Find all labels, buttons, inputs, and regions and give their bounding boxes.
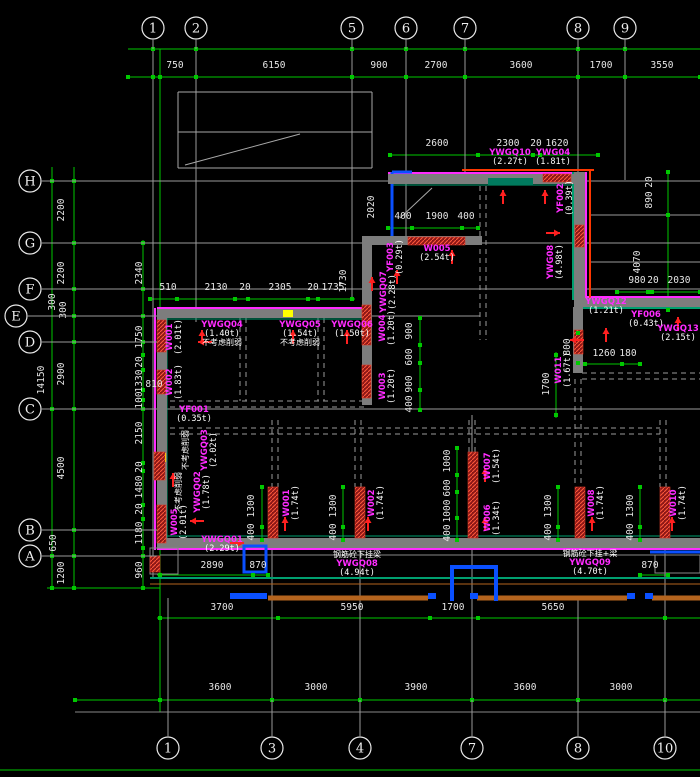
dim-text: 3000 <box>305 682 328 693</box>
dim-tick <box>260 485 264 489</box>
grid-bubble-label-10: 10 <box>657 742 674 757</box>
wall-label-ywgq09-value: (4.70t) <box>572 567 608 577</box>
wall-label-yf002-value: (0.39t) <box>565 180 575 216</box>
leader-arrow-head <box>542 190 549 196</box>
dim-tick <box>455 490 459 494</box>
dim-text: 1750 <box>134 325 145 348</box>
dim-tick <box>410 226 414 230</box>
dim-text: 2890 <box>201 560 224 571</box>
dim-text: 4070 <box>632 250 643 273</box>
dim-text: 1730 <box>338 269 349 292</box>
wall-label-w001-value: (2.01t) <box>174 319 184 355</box>
dim-tick <box>556 525 560 529</box>
dim-text: 2020 <box>366 195 377 218</box>
grid-bubble-label-4: 4 <box>356 742 364 757</box>
dim-tick <box>251 573 255 577</box>
dim-text: 400 <box>328 523 339 540</box>
dim-text: 3600 <box>510 60 533 71</box>
wall-label-w008-value: (1.74t) <box>596 485 606 521</box>
leader-arrow-head <box>589 517 596 523</box>
dim-tick <box>194 75 198 79</box>
grid-bubble-label-E: E <box>11 310 21 325</box>
dim-text: 180 <box>619 348 636 359</box>
dim-text: 1260 <box>593 348 616 359</box>
cad-line <box>185 134 300 165</box>
dim-text: 870 <box>249 560 266 571</box>
dim-tick <box>596 153 600 157</box>
dim-tick <box>158 698 162 702</box>
wall-segment <box>428 593 436 599</box>
dim-text: 100 <box>134 391 145 408</box>
dim-tick <box>556 538 560 542</box>
dim-tick <box>126 75 130 79</box>
dim-text: 1000 <box>442 449 453 472</box>
dim-tick <box>73 698 77 702</box>
wall-label-yf003-value: (0.29t) <box>395 239 405 275</box>
dim-text: 20 <box>134 356 145 368</box>
dim-tick <box>620 362 624 366</box>
dim-tick <box>455 538 459 542</box>
dim-text: 3550 <box>651 60 674 71</box>
wall-label-ywgq09-note: 钢筋砼下挂+梁 <box>563 548 618 558</box>
dim-text: 2305 <box>269 282 292 293</box>
dim-text: 5650 <box>542 602 565 613</box>
dim-text: 1700 <box>590 60 613 71</box>
dim-tick <box>576 361 580 365</box>
grid-bubble-label-G: G <box>25 237 35 252</box>
dim-tick <box>418 408 422 412</box>
dim-text: 3600 <box>514 682 537 693</box>
dim-tick <box>72 586 76 590</box>
dim-text: 650 <box>48 534 59 551</box>
dim-text: 1330 <box>134 369 145 392</box>
dim-text: 4500 <box>56 456 67 479</box>
grid-bubble-label-C: C <box>25 403 35 418</box>
dim-text: 20 <box>239 282 251 293</box>
dim-tick <box>141 517 145 521</box>
dim-tick <box>316 297 320 301</box>
dim-tick <box>476 226 480 230</box>
dim-text: 3600 <box>209 682 232 693</box>
wall-label-ywgq01-value: (2.29t) <box>204 544 240 554</box>
hatched-pier <box>468 452 478 538</box>
leader-arrow-head <box>554 230 560 237</box>
dim-text: 510 <box>159 282 176 293</box>
leader-arrow-head <box>365 517 372 523</box>
wall-label-ywgq08-value: (4.94t) <box>339 568 375 578</box>
dim-tick <box>460 226 464 230</box>
dim-text: 2200 <box>56 261 67 284</box>
dim-tick <box>404 75 408 79</box>
dim-text: 14150 <box>36 365 47 394</box>
hatched-pier <box>154 452 165 480</box>
dim-tick <box>476 616 480 620</box>
wall-label-ywgq02-value: (1.78t) <box>202 474 212 510</box>
dim-tick <box>233 297 237 301</box>
dim-tick <box>418 388 422 392</box>
wall-label-ywg04-value: (1.81t) <box>535 157 571 167</box>
dim-tick <box>666 308 670 312</box>
hatched-pier <box>157 505 166 543</box>
hatched-pier <box>575 225 584 247</box>
dim-text: 2150 <box>134 421 145 444</box>
dim-tick <box>350 75 354 79</box>
wall-segment <box>470 593 478 599</box>
dim-tick <box>246 297 250 301</box>
dim-text: 20 <box>647 275 659 286</box>
dim-tick <box>141 586 145 590</box>
dim-text: 1700 <box>541 372 552 395</box>
dim-text: 2130 <box>205 282 228 293</box>
dim-text: 20 <box>307 282 319 293</box>
wall-label-ywgq08-note: 钢筋砼下挂梁 <box>333 549 381 559</box>
wall-label-ywgq04-note: 不考虑削弱 <box>202 337 242 347</box>
wall-label-w006-value: (1.34t) <box>492 500 502 536</box>
wall-segment <box>230 593 267 599</box>
dim-tick <box>638 538 642 542</box>
grid-bubble-label-H: H <box>24 175 35 190</box>
dim-tick <box>341 485 345 489</box>
dim-text: 300 <box>47 293 58 310</box>
wall-label-ywg08-value: (4.98t) <box>555 244 565 280</box>
dim-text: 400 <box>394 211 411 222</box>
dim-text: 1700 <box>442 602 465 613</box>
dim-text: 750 <box>166 60 183 71</box>
dim-text: 980 <box>628 275 645 286</box>
wall-label-ywgq07-value: (2.28t) <box>388 274 398 310</box>
grid-bubble-label-1: 1 <box>164 742 172 757</box>
dim-text: 400 <box>543 523 554 540</box>
dim-tick <box>556 485 560 489</box>
dim-tick <box>554 413 558 417</box>
hatched-pier <box>575 487 585 538</box>
dim-tick <box>463 75 467 79</box>
dim-tick <box>175 297 179 301</box>
dim-tick <box>646 290 650 294</box>
dim-tick <box>666 170 670 174</box>
dim-tick <box>158 75 162 79</box>
cad-drawing-canvas[interactable]: 7506150900270036001700355022002200300300… <box>0 0 700 777</box>
dim-tick <box>388 153 392 157</box>
dim-tick <box>455 446 459 450</box>
leader-arrow-head <box>190 518 196 525</box>
dim-tick <box>615 290 619 294</box>
wall-label-w010-value: (1.74t) <box>678 485 688 521</box>
wall-segment <box>645 593 653 599</box>
dim-tick <box>476 153 480 157</box>
wall-label-w004-value: (1.20t) <box>387 310 397 346</box>
dim-tick <box>386 226 390 230</box>
grid-bubble-label-7: 7 <box>468 742 476 757</box>
hatched-pier <box>362 365 371 398</box>
wall-label-ywgq05-note: 不考虑削弱 <box>280 337 320 347</box>
grid-bubble-label-F: F <box>25 283 34 298</box>
dim-text: 2200 <box>56 198 67 221</box>
dim-text: 3900 <box>405 682 428 693</box>
dim-tick <box>663 616 667 620</box>
dim-tick <box>666 213 670 217</box>
dim-text: 400 <box>246 523 257 540</box>
wall-label-w011-value: (1.67t) <box>563 352 573 388</box>
grid-bubble-label-2: 2 <box>192 22 200 37</box>
dim-tick <box>141 546 145 550</box>
dim-tick <box>158 616 162 620</box>
dim-text: 5950 <box>341 602 364 613</box>
wall-segment <box>655 555 700 573</box>
grid-bubble-label-A: A <box>24 550 35 565</box>
dim-text: 3700 <box>211 602 234 613</box>
grid-bubble-label-6: 6 <box>402 22 410 37</box>
wall-label-w001-value: (1.74t) <box>291 485 301 521</box>
dim-tick <box>576 75 580 79</box>
dim-tick <box>650 290 654 294</box>
wall-label-ywgq06-value: (1.50t) <box>334 329 370 339</box>
dim-tick <box>638 573 642 577</box>
dim-text: 20 <box>134 503 145 515</box>
dim-tick <box>350 297 354 301</box>
wall-label-yf001-value: (0.35t) <box>176 414 212 424</box>
dim-tick <box>341 538 345 542</box>
leader-arrow-head <box>675 317 682 323</box>
wall-label-ywgq03-value: (2.02t) <box>209 432 219 468</box>
grid-bubble-label-B: B <box>25 524 35 539</box>
wall-label-ywgq03-note: 不考虑削弱 <box>180 430 190 470</box>
cad-svg: 7506150900270036001700355022002200300300… <box>0 0 700 777</box>
leader-arrow-head <box>500 190 507 196</box>
dim-text: 900 <box>404 322 415 339</box>
dim-text: 1300 <box>543 494 554 517</box>
dim-text: 400 <box>457 211 474 222</box>
dim-tick <box>418 343 422 347</box>
dim-text: 600 <box>442 479 453 496</box>
wall-label-w005-value: (2.54t) <box>419 253 455 263</box>
grid-bubble-label-1: 1 <box>149 22 157 37</box>
dim-text: 6150 <box>263 60 286 71</box>
dim-text: 3000 <box>610 682 633 693</box>
wall-label-ywgq12-value: (1.21t) <box>588 306 624 316</box>
dim-tick <box>455 516 459 520</box>
hatched-pier <box>355 487 365 538</box>
wall-label-w005-value: (2.01t) <box>179 504 189 540</box>
dim-text: 1300 <box>625 494 636 517</box>
dim-text: 900 <box>370 60 387 71</box>
dim-text: 400 <box>442 524 453 541</box>
grid-bubble-label-9: 9 <box>621 22 629 37</box>
dim-tick <box>638 525 642 529</box>
wall-label-ywgq10-value: (2.27t) <box>492 157 528 167</box>
dim-text: 400 <box>404 395 415 412</box>
dim-text: 20 <box>644 176 655 188</box>
dim-text: 870 <box>641 560 658 571</box>
dim-tick <box>276 616 280 620</box>
dim-tick <box>260 538 264 542</box>
dim-text: 1200 <box>56 561 67 584</box>
dim-text: 960 <box>134 561 145 578</box>
dim-tick <box>266 573 270 577</box>
dim-tick <box>341 525 345 529</box>
dim-text: 400 <box>625 523 636 540</box>
wall-segment <box>283 310 293 317</box>
grid-bubble-label-8: 8 <box>574 22 582 37</box>
dim-tick <box>148 297 152 301</box>
dim-tick <box>428 616 432 620</box>
dim-text: 890 <box>644 191 655 208</box>
wall-segment <box>627 593 635 599</box>
dim-tick <box>306 297 310 301</box>
wall-label-w002-value: (1.74t) <box>376 485 386 521</box>
dim-text: 1000 <box>442 499 453 522</box>
dim-tick <box>418 316 422 320</box>
dim-tick <box>638 362 642 366</box>
dim-text: 1900 <box>426 211 449 222</box>
dim-text: 810 <box>145 379 162 390</box>
dim-text: 2030 <box>668 275 691 286</box>
wall-label-w007-value: (1.54t) <box>492 448 502 484</box>
dim-text: 1300 <box>328 494 339 517</box>
dim-tick <box>638 485 642 489</box>
wall-label-ywgq13-value: (2.15t) <box>660 333 696 343</box>
grid-bubble-label-7: 7 <box>461 22 469 37</box>
dim-tick <box>554 353 558 357</box>
dim-tick <box>583 362 587 366</box>
dim-tick <box>50 586 54 590</box>
dim-text: 2900 <box>56 362 67 385</box>
dim-tick <box>418 361 422 365</box>
grid-bubble-label-D: D <box>25 336 35 351</box>
dim-text: 2340 <box>134 261 145 284</box>
dim-tick <box>151 75 155 79</box>
wall-segment <box>157 309 368 318</box>
dim-text: 1480 <box>134 475 145 498</box>
hatched-pier <box>268 487 278 538</box>
dim-tick <box>158 573 162 577</box>
dim-tick <box>666 573 670 577</box>
grid-bubble-label-8: 8 <box>574 742 582 757</box>
wall-label-w002-value: (1.83t) <box>174 364 184 400</box>
wall-segment <box>488 178 533 185</box>
leader-arrow-head <box>282 517 289 523</box>
dim-tick <box>260 525 264 529</box>
leader-arrow-head <box>603 328 610 334</box>
dim-tick <box>623 75 627 79</box>
dim-text: 600 <box>404 348 415 365</box>
hatched-pier <box>150 556 160 572</box>
wall-label-w003-value: (1.20t) <box>387 368 397 404</box>
dim-text: 900 <box>404 375 415 392</box>
dim-tick <box>576 331 580 335</box>
dim-tick <box>455 473 459 477</box>
dim-text: 1300 <box>246 494 257 517</box>
grid-bubble-label-3: 3 <box>268 742 276 757</box>
dim-text: 2600 <box>426 138 449 149</box>
dim-text: 1180 <box>134 521 145 544</box>
dim-text: 20 <box>134 461 145 473</box>
dim-text: 2700 <box>425 60 448 71</box>
grid-bubble-label-5: 5 <box>348 22 356 37</box>
